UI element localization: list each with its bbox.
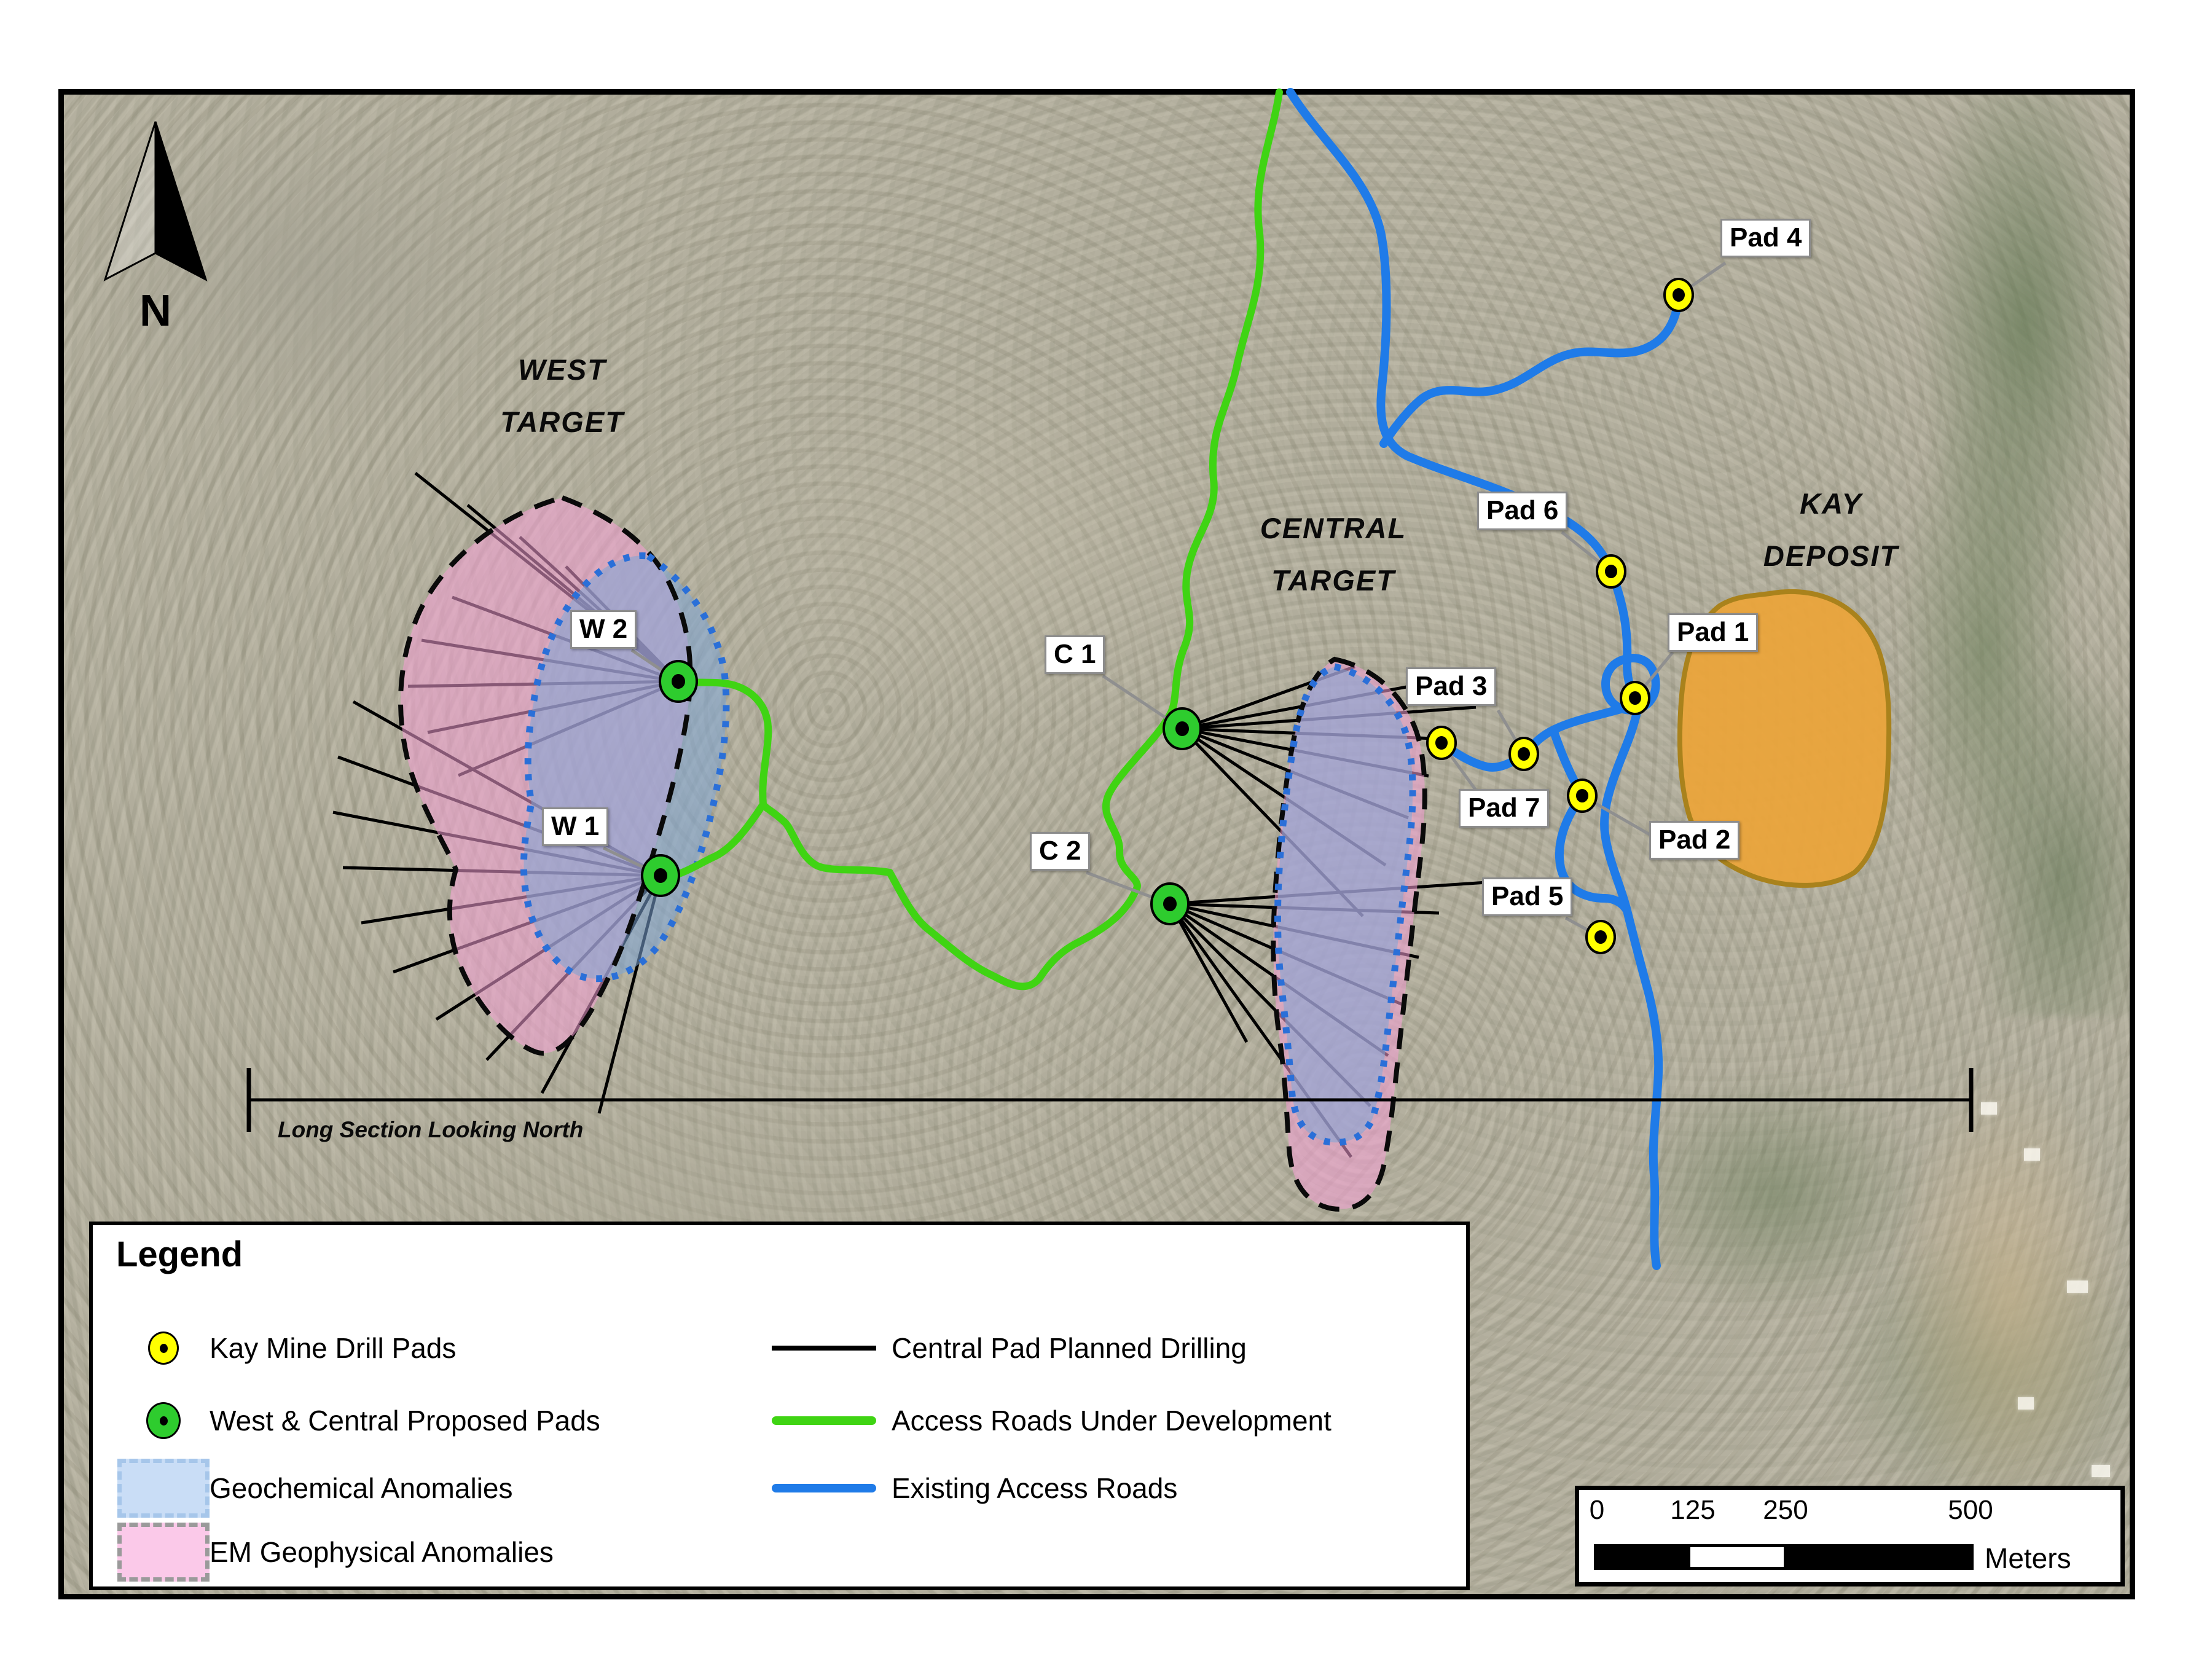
w1-marker [642,855,679,896]
yellow-pad-icon [148,1332,179,1365]
pad-label: Pad 5 [1482,877,1572,916]
proposed-pad-label: C 1 [1045,635,1105,674]
north-arrow-icon: N [105,122,206,335]
legend-item-label: Kay Mine Drill Pads [210,1332,456,1365]
legend-item-label: West & Central Proposed Pads [210,1404,600,1437]
central-target-label: CENTRALTARGET [1198,503,1469,606]
pad-5-marker [1586,921,1615,953]
legend-item-label: Access Roads Under Development [892,1404,1332,1437]
legend-item-label: Existing Access Roads [892,1472,1177,1505]
pad-3-marker [1510,738,1538,770]
pad-label: Pad 3 [1406,667,1496,706]
pad-label: Pad 1 [1668,613,1758,652]
blue-line-icon [772,1484,876,1492]
pad-label: Pad 7 [1459,789,1549,828]
legend-title: Legend [116,1234,243,1275]
w2-marker [660,661,697,702]
legend-item-em: EM Geophysical Anomalies [117,1528,554,1577]
kay-deposit-label: KAYDEPOSIT [1696,478,1966,582]
pad-label: Pad 2 [1649,821,1739,860]
blue-swatch-icon [117,1459,210,1518]
long-section-label: Long Section Looking North [278,1117,583,1143]
pad-label: Pad 6 [1477,492,1567,530]
legend-item-roads-existing: Existing Access Roads [756,1464,1177,1513]
scale-tick: 125 [1670,1495,1715,1526]
c1-marker [1164,708,1201,749]
scale-bar-segments [1594,1544,1974,1570]
green-pad-icon [146,1402,181,1439]
legend-item-label: EM Geophysical Anomalies [210,1535,554,1569]
proposed-pad-label: W 1 [542,807,608,846]
green-line-icon [772,1416,876,1425]
scale-tick: 500 [1948,1495,1993,1526]
pad-7-marker [1427,727,1456,759]
scale-bar: 0 125 250 500 Meters [1575,1486,2125,1586]
pad-4-marker [1665,279,1693,311]
scale-tick: 0 [1590,1495,1604,1526]
legend-item-roads-dev: Access Roads Under Development [756,1396,1332,1445]
pad-label: Pad 4 [1720,219,1811,257]
pad-6-marker [1597,555,1625,587]
pad-1-marker [1621,682,1649,714]
scale-tick: 250 [1763,1495,1808,1526]
pad-2-marker [1568,780,1596,812]
proposed-pad-label: W 2 [570,610,637,649]
legend-item-geochem: Geochemical Anomalies [117,1464,512,1513]
legend-item-proposed-pads: West & Central Proposed Pads [117,1396,600,1445]
scale-unit: Meters [1985,1542,2071,1575]
pink-swatch-icon [117,1523,210,1582]
c2-marker [1151,884,1188,924]
access-roads-under-development [661,92,1279,986]
legend-item-kay-pads: Kay Mine Drill Pads [117,1324,456,1373]
callout-leaders [603,263,1725,937]
legend-item-planned-drilling: Central Pad Planned Drilling [756,1324,1247,1373]
north-label: N [139,286,171,335]
west-target-label: WESTTARGET [427,344,697,448]
legend-item-label: Central Pad Planned Drilling [892,1332,1247,1365]
black-line-icon [772,1346,876,1351]
legend: Legend Kay Mine Drill Pads West & Centra… [89,1222,1470,1590]
proposed-pad-label: C 2 [1030,832,1090,871]
legend-item-label: Geochemical Anomalies [210,1472,512,1505]
